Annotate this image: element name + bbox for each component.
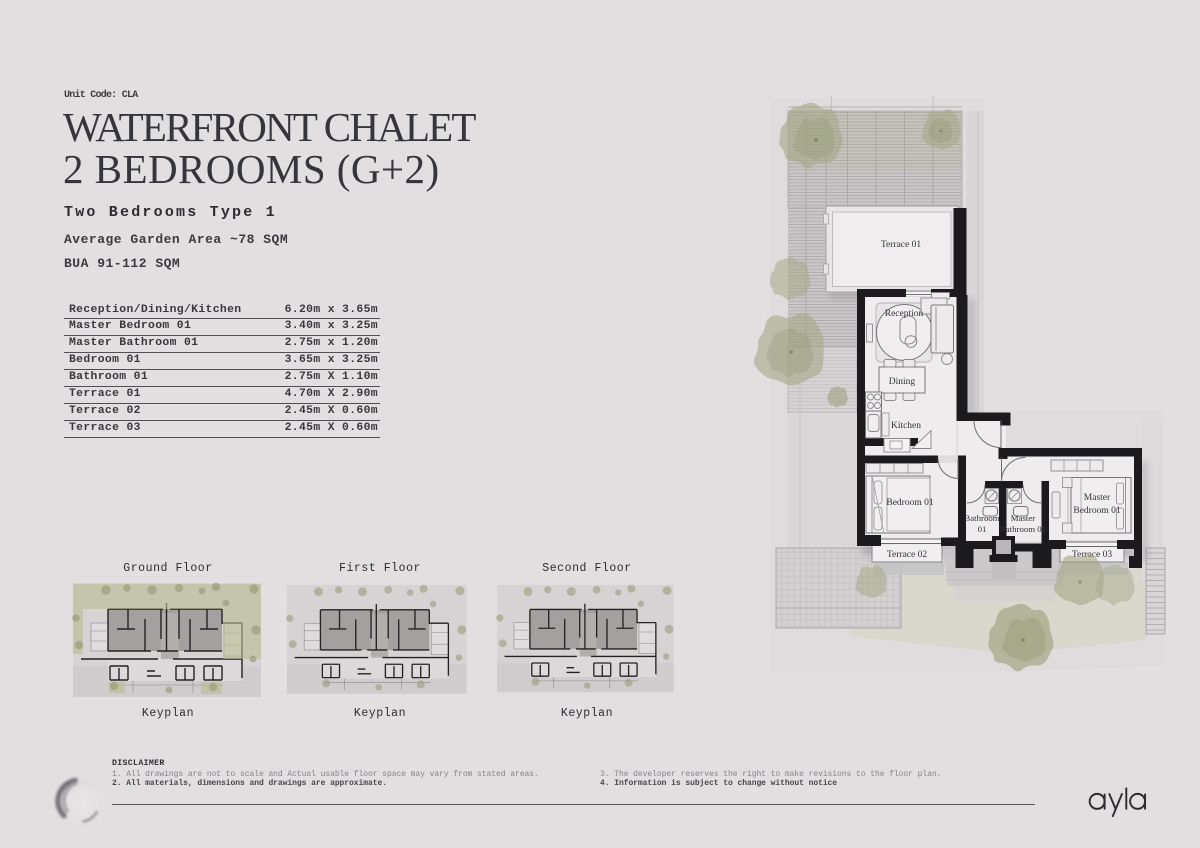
svg-text:Bathroom: Bathroom: [964, 513, 999, 523]
svg-text:Master: Master: [1011, 513, 1035, 523]
svg-text:Bedroom 01: Bedroom 01: [1073, 506, 1120, 516]
svg-text:Master: Master: [1084, 493, 1111, 503]
svg-text:Kitchen: Kitchen: [891, 421, 921, 431]
svg-text:Reception: Reception: [885, 309, 924, 319]
svg-text:Bedroom 01: Bedroom 01: [886, 498, 933, 508]
svg-text:Terrace 01: Terrace 01: [881, 240, 921, 250]
svg-text:Dining: Dining: [889, 377, 916, 387]
svg-text:01: 01: [978, 524, 987, 534]
svg-text:Bathroom 01: Bathroom 01: [1000, 524, 1046, 534]
svg-text:Terrace 02: Terrace 02: [887, 550, 927, 560]
